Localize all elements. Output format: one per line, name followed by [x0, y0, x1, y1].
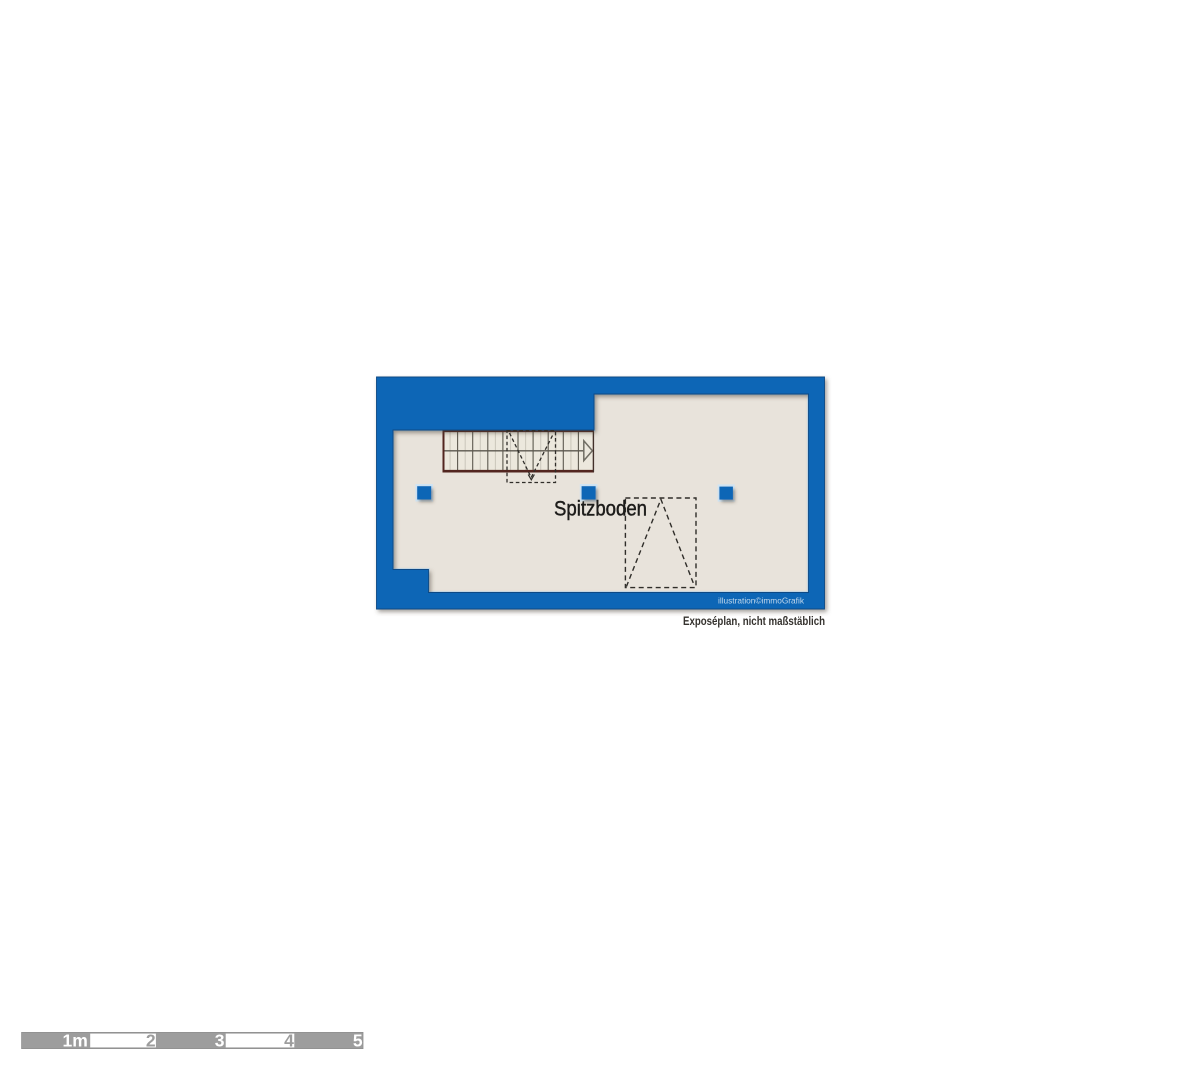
- svg-text:3: 3: [215, 1030, 225, 1050]
- svg-text:4: 4: [284, 1030, 294, 1050]
- svg-text:5: 5: [353, 1030, 363, 1050]
- svg-text:2: 2: [146, 1030, 156, 1050]
- svg-text:1m: 1m: [63, 1030, 88, 1050]
- svg-text:illustration©immoGrafik: illustration©immoGrafik: [718, 597, 805, 606]
- svg-text:Exposéplan, nicht maßstäblich: Exposéplan, nicht maßstäblich: [683, 614, 825, 628]
- svg-text:Spitzboden: Spitzboden: [554, 497, 647, 521]
